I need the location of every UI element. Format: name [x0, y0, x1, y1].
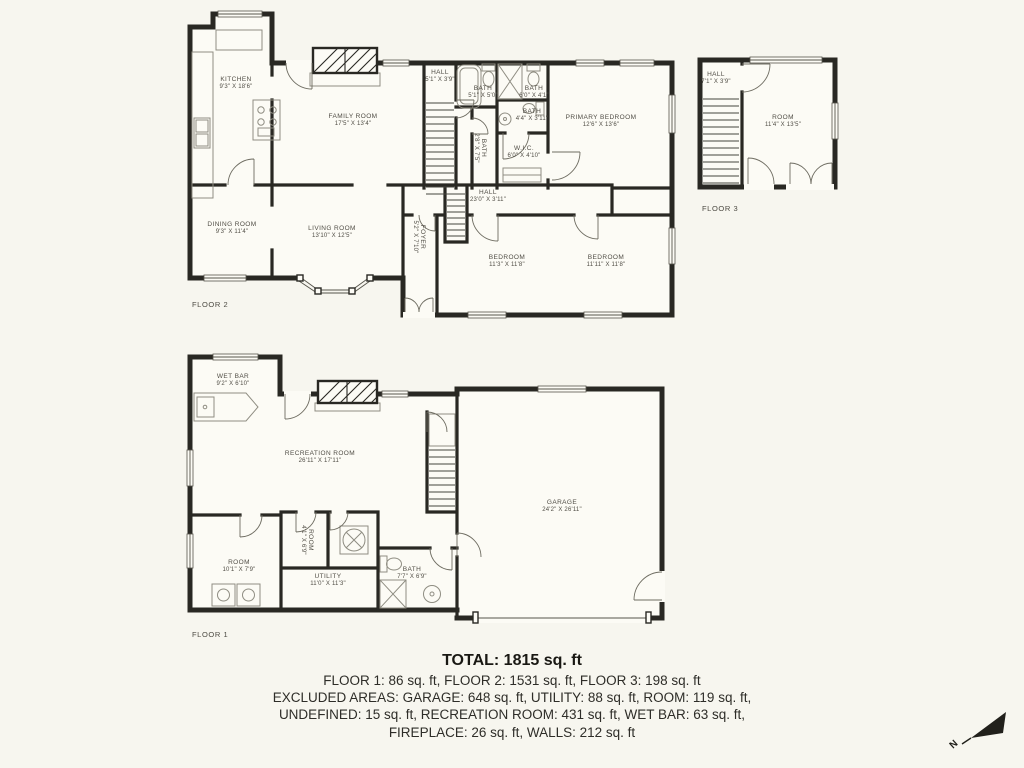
- family-door-gap: [286, 60, 312, 66]
- floor1-tag: FLOOR 1: [192, 630, 228, 639]
- summary-total: TOTAL: 1815 sq. ft: [0, 652, 1024, 670]
- summary-excluded-1: EXCLUDED AREAS: GARAGE: 648 sq. ft, UTIL…: [0, 689, 1024, 706]
- summary-excluded-2: UNDEFINED: 15 sq. ft, RECREATION ROOM: 4…: [0, 706, 1024, 723]
- area-summary: TOTAL: 1815 sq. ft FLOOR 1: 86 sq. ft, F…: [0, 652, 1024, 741]
- floor1-plan: [187, 354, 665, 623]
- floor2-tag: FLOOR 2: [192, 300, 228, 309]
- floorplan-canvas: N KITCHEN 9'3" X 18'6" FAMILY ROOM 17'5"…: [0, 0, 1024, 768]
- summary-excluded-3: FIREPLACE: 26 sq. ft, WALLS: 212 sq. ft: [0, 724, 1024, 741]
- floor2-plan: [190, 11, 675, 318]
- summary-floors: FLOOR 1: 86 sq. ft, FLOOR 2: 1531 sq. ft…: [0, 672, 1024, 689]
- floor3-tag: FLOOR 3: [702, 204, 738, 213]
- front-door-gap: [403, 312, 435, 318]
- floor3-plan: [700, 57, 838, 190]
